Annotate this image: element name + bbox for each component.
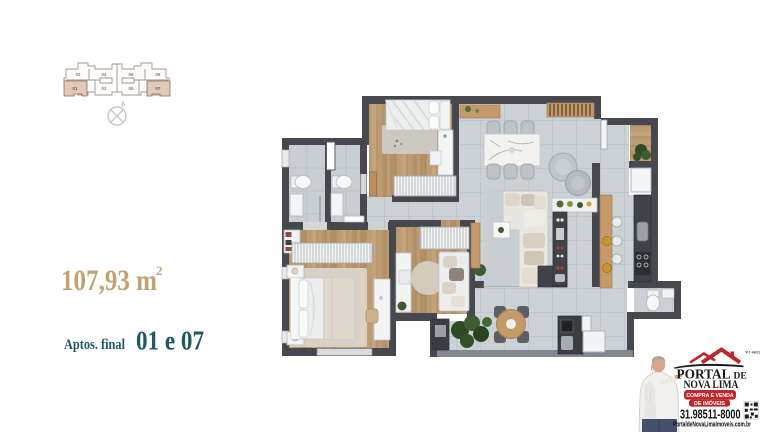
svg-text:06: 06	[129, 72, 134, 77]
svg-text:01: 01	[73, 86, 78, 91]
svg-text:02: 02	[76, 72, 81, 77]
svg-text:NOVA LIMA: NOVA LIMA	[684, 379, 740, 391]
svg-text:2: 2	[156, 263, 163, 278]
svg-text:COMPRA E VENDA: COMPRA E VENDA	[686, 393, 734, 399]
svg-text:03: 03	[102, 86, 107, 91]
svg-text:05: 05	[129, 86, 134, 91]
svg-text:04: 04	[102, 72, 107, 77]
svg-text:107,93 m: 107,93 m	[61, 264, 157, 297]
svg-text:PJ 4601: PJ 4601	[746, 350, 762, 355]
svg-text:PortaldeNovaLimaImoveis.com.br: PortaldeNovaLimaImoveis.com.br	[673, 419, 751, 428]
svg-text:08: 08	[156, 72, 161, 77]
svg-text:07: 07	[156, 86, 161, 91]
svg-text:Aptos. final: Aptos. final	[64, 337, 125, 353]
svg-text:DE IMÓVEIS: DE IMÓVEIS	[694, 399, 725, 407]
svg-text:01 e 07: 01 e 07	[136, 325, 204, 356]
